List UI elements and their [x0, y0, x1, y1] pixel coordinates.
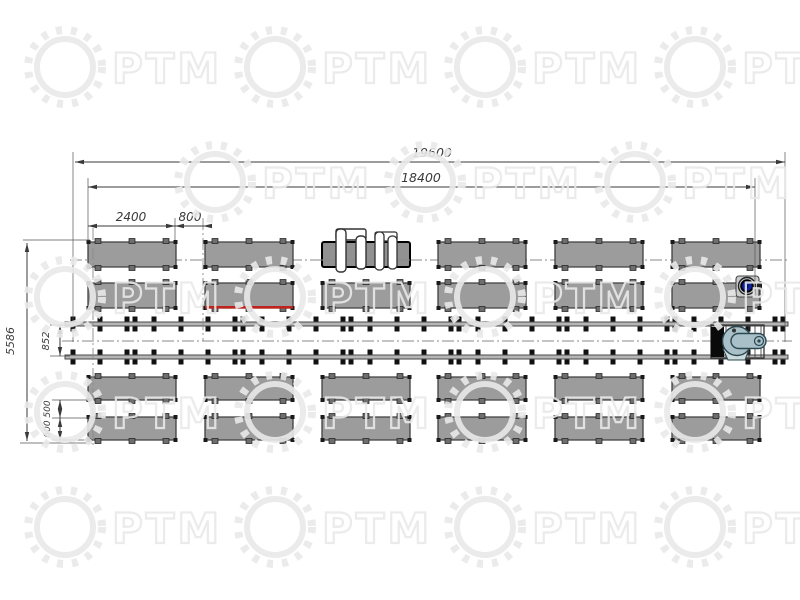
ptm-watermark: РТМ [28, 30, 222, 104]
rail-clamp [673, 360, 678, 365]
watermark-text: РТМ [112, 274, 222, 323]
table-foot [758, 375, 762, 379]
rail-clamp [422, 360, 427, 365]
rail-clamp [314, 349, 319, 354]
table-tab [246, 266, 252, 271]
table-tab [630, 374, 636, 379]
table-foot [554, 265, 558, 269]
rail-clamp [260, 349, 265, 354]
rail-clamp [773, 349, 778, 354]
table-foot [204, 438, 208, 442]
table-tab [445, 439, 451, 444]
table-foot [204, 240, 208, 244]
table-foot [437, 438, 441, 442]
table-tab [596, 374, 602, 379]
table-foot [408, 375, 412, 379]
rail-clamp [368, 349, 373, 354]
table-tab [562, 439, 568, 444]
rail-clamp [692, 316, 697, 321]
table-tab [445, 374, 451, 379]
dim-table-length: 2400 [116, 210, 147, 224]
table-foot [437, 265, 441, 269]
table-tab [513, 266, 519, 271]
work-table [554, 239, 645, 271]
rail-clamp [179, 349, 184, 354]
watermark-text: РТМ [532, 44, 642, 93]
table-foot [437, 375, 441, 379]
watermark-text: РТМ [322, 44, 432, 93]
table-foot [204, 375, 208, 379]
table-tab [212, 266, 218, 271]
table-foot [554, 375, 558, 379]
table-tab [445, 266, 451, 271]
rail-clamp [557, 360, 562, 365]
rail-clamp [584, 360, 589, 365]
rail-clamp [287, 349, 292, 354]
table-tab [212, 439, 218, 444]
gear-icon [37, 39, 93, 95]
rail-clamp [287, 360, 292, 365]
rail-clamp [71, 349, 76, 354]
table-tab [280, 414, 286, 419]
rail-clamp [368, 360, 373, 365]
rail-clamp [98, 360, 103, 365]
table-foot [291, 281, 295, 285]
table-tab [630, 439, 636, 444]
watermark-text: РТМ [262, 159, 372, 208]
table-tab [713, 414, 719, 419]
table-tab [95, 399, 101, 404]
watermark-text: РТМ [112, 44, 222, 93]
rail-bottom [65, 355, 788, 359]
rail-clamp [773, 327, 778, 332]
rail-clamp [349, 349, 354, 354]
gear-icon [247, 39, 303, 95]
rail-clamp [692, 360, 697, 365]
rail-clamp [773, 360, 778, 365]
table-foot [554, 240, 558, 244]
table-foot [291, 415, 295, 419]
table-tab [596, 439, 602, 444]
rail-clamp [584, 327, 589, 332]
table-foot [291, 240, 295, 244]
ptm-watermark: РТМ [28, 260, 222, 334]
table-foot [554, 438, 558, 442]
table-tab [95, 266, 101, 271]
rail-clamp [638, 327, 643, 332]
table-tab [747, 374, 753, 379]
watermark-text: РТМ [112, 504, 222, 553]
table-tab [513, 439, 519, 444]
watermark-text: РТМ [742, 44, 800, 93]
watermark-text: РТМ [112, 389, 222, 438]
rail-clamp [314, 316, 319, 321]
table-tab [479, 280, 485, 285]
rail-clamp [125, 327, 130, 332]
work-table [87, 239, 178, 271]
rail-clamp [314, 360, 319, 365]
rail-clamp [638, 349, 643, 354]
rail-clamp [449, 327, 454, 332]
rail-clamp [241, 349, 246, 354]
table-foot [291, 398, 295, 402]
table-tab [747, 439, 753, 444]
table-foot [204, 265, 208, 269]
rail-clamp [133, 327, 138, 332]
table-foot [437, 240, 441, 244]
rail-clamp [457, 360, 462, 365]
table-foot [524, 306, 528, 310]
table-tab [163, 266, 169, 271]
table-top [205, 242, 293, 267]
table-foot [437, 306, 441, 310]
work-table [204, 239, 295, 271]
rail-clamp [341, 327, 346, 332]
rail-clamp [449, 349, 454, 354]
rail-clamp [665, 349, 670, 354]
watermark-text: РТМ [472, 159, 582, 208]
rail-clamp [503, 349, 508, 354]
table-foot [437, 415, 441, 419]
table-tab [246, 239, 252, 244]
table-tab [679, 280, 685, 285]
table-tab [747, 239, 753, 244]
table-tab [95, 374, 101, 379]
table-tab [713, 239, 719, 244]
rail-clamp [692, 349, 697, 354]
table-tab [329, 439, 335, 444]
table-top [88, 242, 176, 267]
rail-clamp [781, 360, 786, 365]
ptm-watermark: РТМ [178, 145, 372, 219]
table-foot [321, 375, 325, 379]
table-tab [562, 239, 568, 244]
table-foot [524, 438, 528, 442]
table-tab [129, 266, 135, 271]
table-tab [747, 266, 753, 271]
table-tab [280, 280, 286, 285]
table-foot [758, 438, 762, 442]
table-tab [280, 399, 286, 404]
rail-clamp [233, 349, 238, 354]
gear-icon [37, 269, 93, 325]
table-tab [246, 374, 252, 379]
turnover-device [318, 229, 416, 272]
table-foot [758, 265, 762, 269]
table-foot [437, 398, 441, 402]
rail-clamp [476, 349, 481, 354]
rail-clamp [233, 316, 238, 321]
table-foot [524, 265, 528, 269]
watermark-text: РТМ [532, 504, 642, 553]
rail-clamp [206, 360, 211, 365]
rail-clamp [422, 327, 427, 332]
frame-bar [388, 236, 397, 269]
table-tab [397, 439, 403, 444]
table-foot [524, 398, 528, 402]
table-tab [163, 239, 169, 244]
rail-clamp [241, 327, 246, 332]
dim-working-line-length: 18400 [401, 170, 441, 185]
table-tab [479, 414, 485, 419]
table-tab [513, 374, 519, 379]
watermark-text: РТМ [532, 274, 642, 323]
rail-clamp [241, 360, 246, 365]
rail-clamp [565, 360, 570, 365]
rail-clamp [530, 360, 535, 365]
rail-clamp [530, 349, 535, 354]
rail-clamp [665, 327, 670, 332]
rail-clamp [457, 349, 462, 354]
gear-icon [667, 499, 723, 555]
work-table [437, 239, 528, 271]
rail-clamp [476, 360, 481, 365]
table-foot [671, 240, 675, 244]
table-foot [758, 240, 762, 244]
table-tab [329, 374, 335, 379]
rail-clamp [746, 360, 751, 365]
watermark-text: РТМ [322, 274, 432, 323]
table-tab [630, 266, 636, 271]
table-foot [174, 240, 178, 244]
rail-clamp [125, 349, 130, 354]
table-foot [671, 415, 675, 419]
table-tab [679, 307, 685, 312]
table-tab [363, 439, 369, 444]
gear-icon [667, 39, 723, 95]
rail-clamp [152, 349, 157, 354]
watermark-text: РТМ [742, 274, 800, 323]
drawing-svg: 19600 18400 2400 800 5586 852 500 600 РТ… [0, 0, 800, 600]
ptm-watermark: РТМ [598, 145, 792, 219]
watermark-text: РТМ [322, 504, 432, 553]
table-tab [630, 239, 636, 244]
rail-clamp [530, 327, 535, 332]
table-foot [641, 438, 645, 442]
table-tab [129, 439, 135, 444]
table-tab [212, 239, 218, 244]
dim-row-gap: 500 [43, 400, 53, 417]
rail-clamp [565, 349, 570, 354]
rail-clamp [133, 360, 138, 365]
table-tab [679, 239, 685, 244]
table-top [555, 242, 643, 267]
table-foot [87, 240, 91, 244]
rail-clamp [349, 360, 354, 365]
ptm-watermark: РТМ [658, 30, 800, 104]
table-tab [163, 439, 169, 444]
ptm-watermark: РТМ [28, 490, 222, 564]
gear-icon [457, 499, 513, 555]
table-tab [95, 439, 101, 444]
table-tab [479, 399, 485, 404]
watermark-text: РТМ [742, 504, 800, 553]
rail-clamp [611, 349, 616, 354]
table-foot [291, 375, 295, 379]
table-foot [408, 438, 412, 442]
rail-clamp [71, 360, 76, 365]
watermark-text: РТМ [682, 159, 792, 208]
rail-clamp [125, 360, 130, 365]
table-foot [174, 438, 178, 442]
rail-clamp [206, 327, 211, 332]
rail-clamp [673, 349, 678, 354]
gear-icon [247, 499, 303, 555]
ptm-watermark: РТМ [448, 30, 642, 104]
rail-clamp [314, 327, 319, 332]
rail-clamp [781, 349, 786, 354]
table-tab [679, 399, 685, 404]
table-tab [445, 280, 451, 285]
rail-clamp [584, 349, 589, 354]
table-tab [129, 239, 135, 244]
table-tab [679, 414, 685, 419]
watermark-text: РТМ [532, 389, 642, 438]
rail-clamp [179, 327, 184, 332]
table-tab [513, 239, 519, 244]
frame-bar [375, 232, 384, 270]
table-tab [445, 239, 451, 244]
ptm-watermark: РТМ [448, 490, 642, 564]
table-tab [95, 239, 101, 244]
rail-clamp [611, 360, 616, 365]
layout-drawing: 19600 18400 2400 800 5586 852 500 600 РТ… [0, 0, 800, 600]
table-foot [291, 438, 295, 442]
rail-clamp [503, 360, 508, 365]
rail-clamp [449, 360, 454, 365]
rail-clamp [638, 360, 643, 365]
table-tab [129, 374, 135, 379]
table-tab [479, 307, 485, 312]
dim-layout-height: 5586 [4, 327, 17, 355]
table-tab [246, 439, 252, 444]
ptm-watermark: РТМ [238, 30, 432, 104]
ptm-watermark: РТМ [658, 490, 800, 564]
rail-clamp [206, 349, 211, 354]
rail-clamp [368, 327, 373, 332]
ptm-watermark: РТМ [238, 490, 432, 564]
table-foot [524, 240, 528, 244]
rail-clamp [98, 349, 103, 354]
rail-clamp [395, 360, 400, 365]
rail-clamp [611, 327, 616, 332]
table-foot [174, 265, 178, 269]
table-foot [641, 265, 645, 269]
rail-clamp [565, 327, 570, 332]
arm-joint-center [757, 339, 760, 342]
table-foot [641, 240, 645, 244]
table-tab [562, 374, 568, 379]
rail-clamp [341, 349, 346, 354]
positioner-pin [732, 329, 736, 333]
frame-bar [356, 236, 366, 269]
table-foot [174, 375, 178, 379]
rail-clamp [260, 360, 265, 365]
dim-rail-gauge: 852 [41, 331, 52, 350]
table-tab [397, 374, 403, 379]
table-tab [163, 374, 169, 379]
gear-icon [457, 39, 513, 95]
watermark-text: РТМ [322, 389, 432, 438]
table-tab [562, 266, 568, 271]
rail-clamp [152, 327, 157, 332]
rail-clamp [665, 360, 670, 365]
rail-clamp [133, 349, 138, 354]
frame-bar [336, 229, 346, 272]
table-tab [679, 374, 685, 379]
rail-clamp [233, 360, 238, 365]
gear-icon [37, 499, 93, 555]
rail-clamp [395, 327, 400, 332]
rail-clamp [557, 349, 562, 354]
rail-clamp [719, 316, 724, 321]
table-tab [479, 239, 485, 244]
rail-clamp [179, 360, 184, 365]
table-tab [280, 239, 286, 244]
table-top [438, 377, 526, 400]
table-foot [524, 281, 528, 285]
rail-clamp [98, 327, 103, 332]
rail-clamp [719, 360, 724, 365]
rail-clamp [152, 360, 157, 365]
table-foot [524, 375, 528, 379]
watermark-text: РТМ [742, 389, 800, 438]
rail-clamp [557, 327, 562, 332]
rail-clamp [349, 327, 354, 332]
table-tab [363, 374, 369, 379]
table-tab [713, 374, 719, 379]
table-top [672, 242, 760, 267]
table-tab [596, 239, 602, 244]
rail-clamp [457, 327, 462, 332]
rail-clamp [233, 327, 238, 332]
table-foot [641, 375, 645, 379]
rail-clamp [260, 327, 265, 332]
table-foot [321, 438, 325, 442]
rail-clamp [395, 349, 400, 354]
table-foot [437, 281, 441, 285]
rail-clamp [341, 360, 346, 365]
table-tab [212, 374, 218, 379]
rail-clamp [422, 349, 427, 354]
table-tab [596, 266, 602, 271]
table-foot [671, 438, 675, 442]
